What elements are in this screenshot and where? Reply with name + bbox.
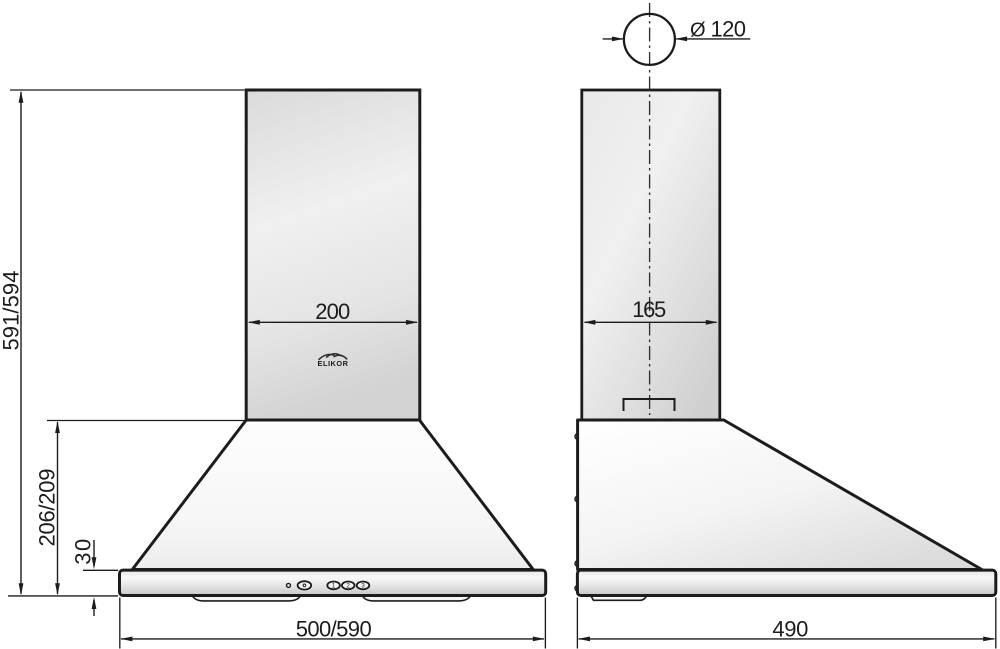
svg-text:ELIKOR: ELIKOR <box>318 359 349 368</box>
svg-text:206/209: 206/209 <box>35 469 60 547</box>
svg-text:500/590: 500/590 <box>296 616 372 641</box>
svg-text:165: 165 <box>632 297 666 322</box>
svg-text:490: 490 <box>772 616 808 641</box>
svg-text:30: 30 <box>71 539 96 565</box>
svg-text:Ø 120: Ø 120 <box>690 17 746 42</box>
svg-text:591/594: 591/594 <box>0 271 24 351</box>
svg-text:200: 200 <box>315 299 350 324</box>
